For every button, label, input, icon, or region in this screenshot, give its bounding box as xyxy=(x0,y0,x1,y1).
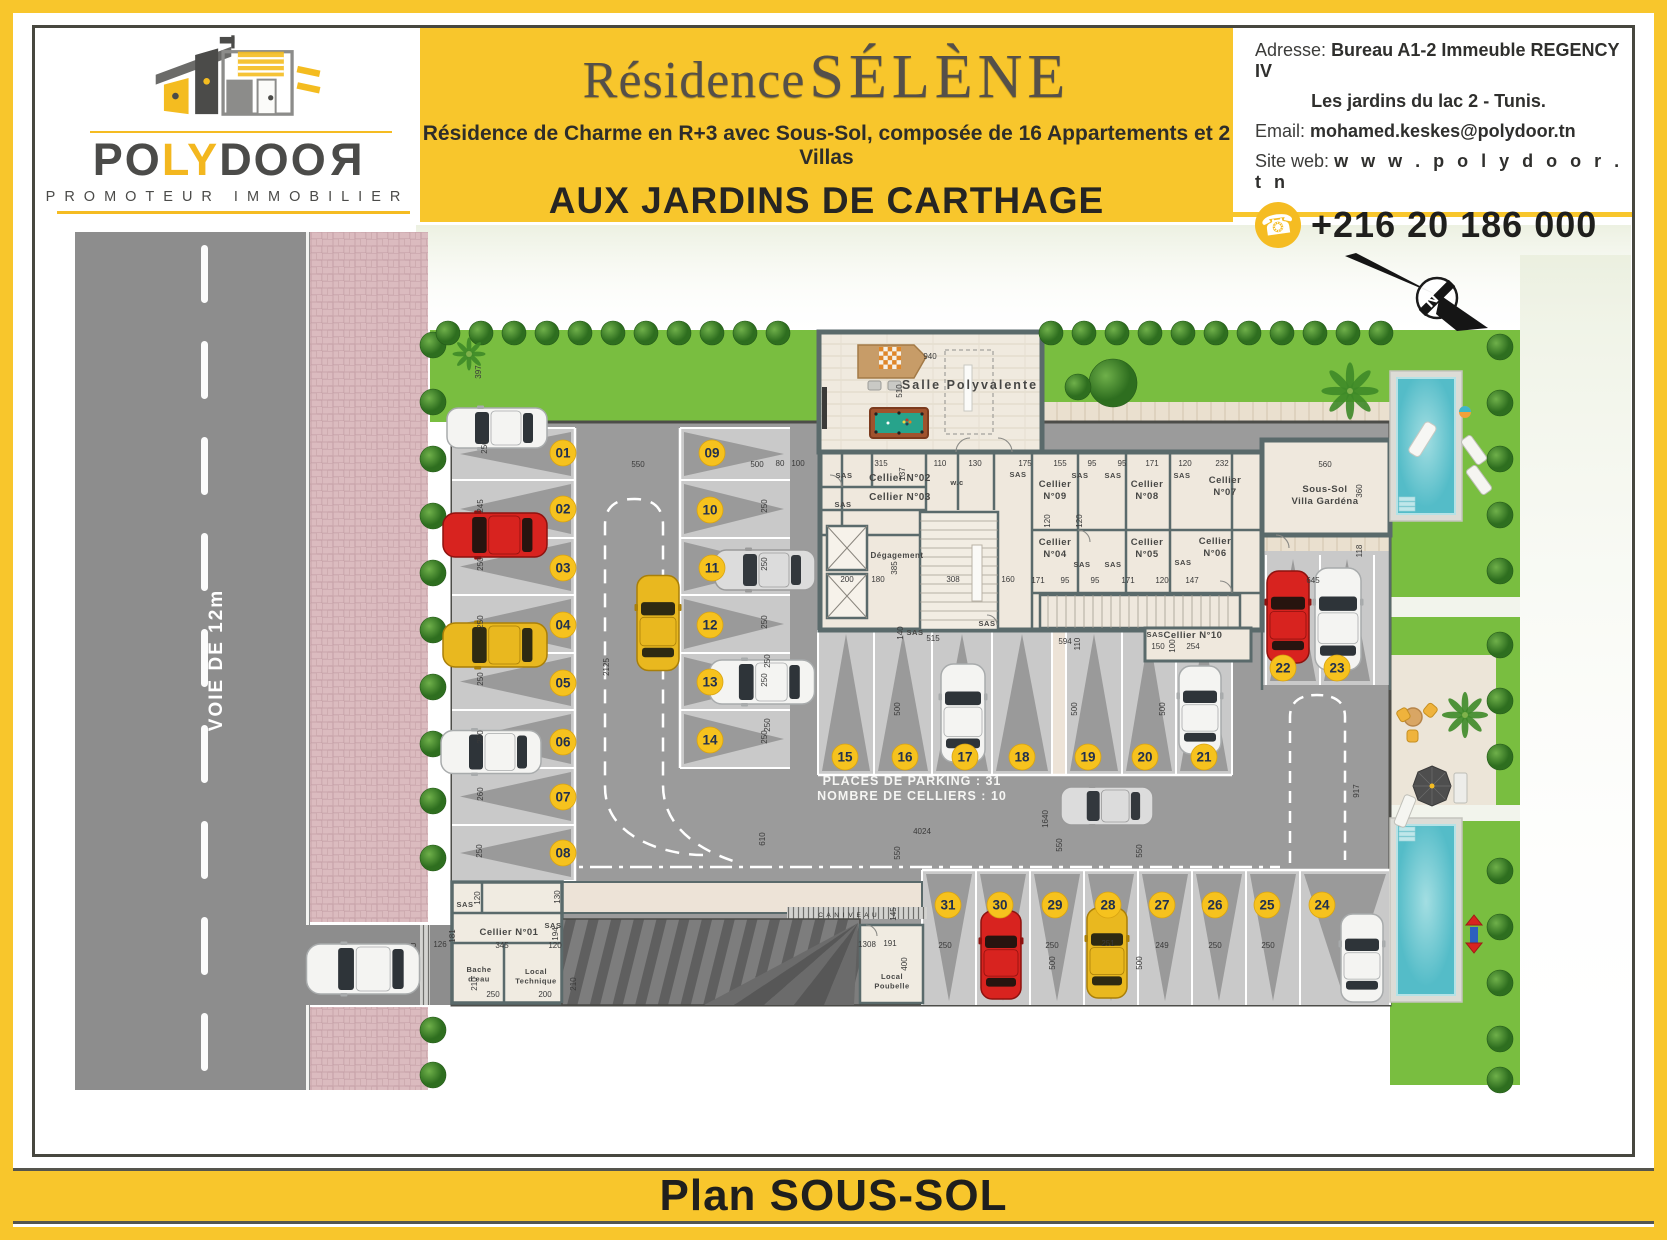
dimension-label: 200 xyxy=(840,575,854,584)
dimension-label: 250 xyxy=(760,673,769,687)
garden-path xyxy=(1390,597,1520,617)
sas-label: SAS xyxy=(1074,560,1091,569)
dimension-label: 150 xyxy=(1151,642,1165,651)
car-windshield xyxy=(945,691,981,705)
dimension-label: 250 xyxy=(760,557,769,571)
logo-block: POLYDOOR PROMOTEUR IMMOBILIER xyxy=(35,28,420,222)
car-roof xyxy=(1270,611,1306,639)
parking-spot-04: 04 xyxy=(550,612,576,638)
local-poubelle-room xyxy=(860,925,923,1003)
road-dash xyxy=(201,437,208,495)
dimension-label: 250 xyxy=(760,499,769,513)
car-yellow xyxy=(443,621,547,670)
dimension-label: 250 xyxy=(476,672,485,686)
parking-spot-18: 18 xyxy=(1009,744,1035,770)
local-technique-label: Technique xyxy=(515,976,556,985)
dimension-label: 250 xyxy=(476,615,485,629)
dimension-label: 181 xyxy=(448,929,457,943)
dimension-label: 560 xyxy=(1318,460,1332,469)
sas-label: SAS xyxy=(1175,558,1192,567)
dimension-label: 315 xyxy=(874,459,888,468)
bush-icon xyxy=(1487,744,1513,770)
cellier-01-label: Cellier N°01 xyxy=(480,927,539,938)
billiard-ball xyxy=(906,423,909,426)
dimension-label: 120 xyxy=(1155,576,1169,585)
car-mirror xyxy=(741,703,748,707)
contact-website: Site web: w w w . p o l y d o o r . t n xyxy=(1255,151,1632,193)
car-mirror xyxy=(474,666,481,670)
counter-tile xyxy=(892,347,896,351)
cellier-08-label: N°08 xyxy=(1135,491,1158,502)
car-rear-glass xyxy=(392,949,403,989)
car-roof xyxy=(356,947,390,991)
counter-tile xyxy=(888,360,892,364)
dimension-label: 250 xyxy=(938,941,952,950)
dimension-label: 180 xyxy=(871,575,885,584)
dimension-label: 250 xyxy=(1208,941,1222,950)
car-yellow xyxy=(635,576,682,671)
entrance-caniveau xyxy=(420,925,430,1005)
dimension-label: 645 xyxy=(1306,576,1320,585)
car-mirror xyxy=(1089,824,1096,828)
parking-spot-15: 15 xyxy=(832,744,858,770)
contact-email: Email: mohamed.keskes@polydoor.tn xyxy=(1255,121,1632,142)
parking-spot-05: 05 xyxy=(550,670,576,696)
car-roof xyxy=(485,734,515,771)
parking-spot-16: 16 xyxy=(892,744,918,770)
bush-icon xyxy=(535,321,559,345)
parking-spot-03: 03 xyxy=(550,555,576,581)
bush-icon xyxy=(700,321,724,345)
billiard-pocket xyxy=(920,412,923,415)
palm-tree-icon xyxy=(1321,362,1378,419)
pool-steps xyxy=(1399,832,1415,836)
car-mirror xyxy=(1220,692,1224,699)
car-rear-glass xyxy=(1092,976,1122,985)
bush-icon xyxy=(420,1062,446,1088)
dimension-label: 250 xyxy=(763,654,772,668)
sas-label: SAS xyxy=(1105,560,1122,569)
sas-label: SAS xyxy=(835,500,852,509)
dimension-label: 171 xyxy=(1031,576,1045,585)
parking-spot-31: 31 xyxy=(935,892,961,918)
dimension-label: 940 xyxy=(923,352,937,361)
bush-icon xyxy=(1487,914,1513,940)
dimension-label: 120 xyxy=(548,941,562,950)
counter-tile xyxy=(888,347,892,351)
dimension-label: 917 xyxy=(1352,784,1361,798)
stair-landing xyxy=(972,545,982,601)
spot-number: 09 xyxy=(704,446,719,461)
dimension-label: 550 xyxy=(893,846,902,860)
car-rear-glass xyxy=(791,555,801,585)
dimension-label: 249 xyxy=(1155,941,1169,950)
car-mirror xyxy=(1339,940,1343,947)
billiard-cloth xyxy=(875,413,923,433)
car-mirror xyxy=(1265,599,1269,606)
dimension-label: 100 xyxy=(1168,639,1177,653)
pool-steps xyxy=(1399,497,1415,501)
play-toy xyxy=(1470,927,1478,943)
car-mirror xyxy=(1126,935,1130,942)
car-mirror xyxy=(1089,785,1096,789)
sas-label: SAS xyxy=(1174,471,1191,480)
counter-tile xyxy=(879,347,883,351)
plan-title: Plan SOUS-SOL xyxy=(660,1171,1008,1221)
dimension-label: 145 xyxy=(889,907,898,921)
contact-phone-row: +216 20 186 000 xyxy=(1255,202,1632,248)
car-roof xyxy=(1182,705,1218,731)
car-mirror xyxy=(1020,937,1024,944)
spot-number: 30 xyxy=(992,898,1007,913)
bush-icon xyxy=(502,321,526,345)
sas-label: SAS xyxy=(457,900,474,909)
car-windshield xyxy=(1319,597,1357,611)
dimension-label: 155 xyxy=(1053,459,1067,468)
car-roof xyxy=(491,411,521,445)
contact-address-line2: Les jardins du lac 2 - Tunis. xyxy=(1255,91,1632,112)
bush-icon xyxy=(469,321,493,345)
dimension-label: 500 xyxy=(1158,702,1167,716)
spot-number: 16 xyxy=(897,750,913,765)
dimension-label: 250 xyxy=(475,844,484,858)
car-red xyxy=(443,511,547,560)
counter-tile xyxy=(883,356,887,360)
salle-polyvalente-room xyxy=(819,332,1042,452)
villa-gardena-label: Sous-Sol xyxy=(1302,484,1347,495)
dimension-label: 147 xyxy=(1185,576,1199,585)
counter-tile xyxy=(888,351,892,355)
dimension-label: 120 xyxy=(1075,514,1084,528)
bush-icon xyxy=(420,446,446,472)
spot-number: 31 xyxy=(940,898,956,913)
spot-number: 21 xyxy=(1196,750,1212,765)
sas-label: SAS xyxy=(1010,470,1027,479)
car-white xyxy=(447,406,547,451)
wc-label: w.c xyxy=(949,478,963,487)
bush-icon xyxy=(1487,858,1513,884)
residence-location: AUX JARDINS DE CARTHAGE xyxy=(420,180,1233,222)
car-windshield xyxy=(743,554,757,586)
bush-icon xyxy=(1039,321,1063,345)
parking-spot-23: 23 xyxy=(1324,655,1350,681)
poster-page: POLYDOOR PROMOTEUR IMMOBILIER Résidence … xyxy=(0,0,1667,1240)
spot-number: 25 xyxy=(1259,898,1275,913)
sun-lounger xyxy=(1454,773,1467,803)
dimension-label: 397 xyxy=(474,365,483,379)
car-mirror xyxy=(979,937,983,944)
car-windshield xyxy=(985,936,1017,948)
car-mirror xyxy=(635,604,639,611)
dimension-label: 308 xyxy=(946,575,960,584)
bush-icon xyxy=(1105,321,1129,345)
bush-icon xyxy=(1138,321,1162,345)
cellier-03-label: Cellier N°03 xyxy=(869,492,931,503)
garden-chair xyxy=(1407,730,1418,742)
caniveau-label: C A N I V E A U xyxy=(818,912,877,919)
car-rear-glass xyxy=(522,628,532,662)
umbrella-icon xyxy=(1413,766,1451,806)
counter-tile xyxy=(883,351,887,355)
spot-number: 28 xyxy=(1100,898,1116,913)
spot-number: 18 xyxy=(1014,750,1030,765)
pool-steps xyxy=(1399,827,1415,831)
counter-tile xyxy=(879,356,883,360)
sas-label: SAS xyxy=(979,619,996,628)
dimension-label: 254 xyxy=(1186,642,1200,651)
car-white xyxy=(441,728,541,776)
tv-unit xyxy=(822,387,827,429)
car-windshield xyxy=(1345,939,1379,951)
dimension-label: 400 xyxy=(900,957,909,971)
billiard-pocket xyxy=(897,431,900,434)
dimension-label: 250 xyxy=(480,440,489,454)
car-windshield xyxy=(1271,597,1305,610)
dimension-label: 250 xyxy=(476,557,485,571)
counter-tile xyxy=(892,365,896,369)
background-wash xyxy=(1520,255,1631,1095)
counter-tile xyxy=(897,360,901,364)
dimension-label: 95 xyxy=(1088,459,1097,468)
contact-block: Adresse: Bureau A1-2 Immeuble REGENCY IV… xyxy=(1233,28,1632,217)
car-mirror xyxy=(1085,935,1089,942)
car-silver xyxy=(1061,785,1153,828)
sidewalk xyxy=(310,1007,428,1090)
spot-number: 29 xyxy=(1047,898,1062,913)
road-dash xyxy=(201,821,208,879)
bush-icon xyxy=(420,845,446,871)
billiard-ball xyxy=(903,421,906,424)
car-roof xyxy=(1101,790,1129,822)
dimension-label: 500 xyxy=(750,460,764,469)
bush-icon xyxy=(420,617,446,643)
spot-number: 04 xyxy=(555,618,571,633)
dimension-label: 140 xyxy=(896,626,905,640)
dimension-label: 385 xyxy=(890,561,899,575)
counter-tile xyxy=(897,351,901,355)
billiard-pocket xyxy=(897,411,900,414)
brand-wordmark: POLYDOOR xyxy=(35,137,420,182)
spot-number: 03 xyxy=(555,561,571,576)
dimension-label: 120 xyxy=(1043,514,1052,528)
parking-spot-17: 17 xyxy=(952,744,978,770)
counter-tile xyxy=(879,360,883,364)
dimension-label: 171 xyxy=(1121,576,1135,585)
palm-center xyxy=(1462,712,1468,718)
counter-tile xyxy=(897,356,901,360)
road-dash xyxy=(201,1013,208,1071)
dimension-label: 500 xyxy=(1135,956,1144,970)
parking-spot-27: 27 xyxy=(1149,892,1175,918)
dimension-label: 126 xyxy=(433,940,447,949)
header: POLYDOOR PROMOTEUR IMMOBILIER Résidence … xyxy=(35,28,1632,222)
dimension-label: 171 xyxy=(1145,459,1159,468)
spot-number: 06 xyxy=(555,735,571,750)
palm-tree-icon xyxy=(1442,692,1488,738)
cellier-06-label: N°06 xyxy=(1203,548,1226,559)
sas-label: SAS xyxy=(836,471,853,480)
billiard-ball xyxy=(909,421,912,424)
car-roof xyxy=(984,950,1018,976)
bush-icon xyxy=(1204,321,1228,345)
degagement-label: Dégagement xyxy=(870,551,923,560)
counter-tile xyxy=(888,365,892,369)
parking-spot-14: 14 xyxy=(697,727,723,753)
cellier-06-label: Cellier xyxy=(1199,536,1232,547)
dimension-label: 500 xyxy=(1070,702,1079,716)
car-rear-glass xyxy=(986,978,1016,987)
pool-steps xyxy=(1399,837,1415,841)
pool-steps xyxy=(1399,502,1415,506)
dimension-label: 120 xyxy=(473,891,482,905)
car-rear-glass xyxy=(789,665,800,699)
swimming-pool xyxy=(1397,825,1455,995)
dimension-label: 194 xyxy=(551,927,560,941)
road-dash xyxy=(201,245,208,303)
bush-icon xyxy=(420,560,446,586)
car-mirror xyxy=(678,604,682,611)
car-white xyxy=(307,942,420,997)
dimension-label: 100 xyxy=(791,459,805,468)
dimension-label: 550 xyxy=(631,460,645,469)
dimension-label: 500 xyxy=(893,702,902,716)
counter-tile xyxy=(883,365,887,369)
parking-spot-30: 30 xyxy=(987,892,1013,918)
car-mirror xyxy=(1360,599,1364,606)
logo-divider-bottom xyxy=(57,211,410,214)
car-rear-glass xyxy=(523,413,533,443)
cellier-09-label: N°09 xyxy=(1043,491,1066,502)
dimension-label: 110 xyxy=(1073,637,1082,650)
parking-spot-22: 22 xyxy=(1270,655,1296,681)
footer-title-bar: Plan SOUS-SOL xyxy=(13,1168,1654,1224)
car-red xyxy=(1265,571,1312,663)
dimension-label: 1640 xyxy=(1041,810,1050,828)
parking-spot-26: 26 xyxy=(1202,892,1228,918)
car-red xyxy=(979,911,1024,999)
car-roof xyxy=(1090,948,1124,975)
bush-icon xyxy=(634,321,658,345)
car-mirror xyxy=(741,658,748,662)
spot-number: 23 xyxy=(1329,661,1345,676)
brand-tagline: PROMOTEUR IMMOBILIER xyxy=(35,189,420,205)
car-mirror xyxy=(471,773,478,777)
bush-icon xyxy=(1336,321,1360,345)
dimension-label: 95 xyxy=(1061,576,1070,585)
pool-steps xyxy=(1399,507,1415,511)
parking-spot-12: 12 xyxy=(697,612,723,638)
cellier-04-label: Cellier xyxy=(1039,537,1072,548)
logo-divider xyxy=(90,131,392,133)
dimension-label: 130 xyxy=(968,459,982,468)
bush-icon xyxy=(568,321,592,345)
billiard-pocket xyxy=(920,430,923,433)
chair xyxy=(868,381,881,390)
bush-icon xyxy=(1487,390,1513,416)
bush-icon xyxy=(1369,321,1393,345)
car-windshield xyxy=(338,948,354,990)
salle-polyvalente-label: Salle Polyvalente xyxy=(902,378,1038,392)
residence-title: Résidence SÉLÈNE xyxy=(420,42,1233,113)
bush-icon xyxy=(420,503,446,529)
car-rear-glass xyxy=(1131,792,1140,820)
car-mirror xyxy=(1382,940,1386,947)
car-mirror xyxy=(745,589,752,593)
car-roof xyxy=(1344,953,1380,979)
bush-icon xyxy=(1072,321,1096,345)
bush-icon xyxy=(1487,970,1513,996)
cellar-count-label: NOMBRE DE CELLIERS : 10 xyxy=(817,789,1007,803)
polydoor-house-icon xyxy=(128,32,328,124)
pillar-strip xyxy=(1052,630,1066,775)
dimension-label: 110 xyxy=(934,459,947,468)
parking-spot-19: 19 xyxy=(1075,744,1101,770)
counter-tile xyxy=(879,351,883,355)
parking-spot-25: 25 xyxy=(1254,892,1280,918)
dimension-label: 2125 xyxy=(602,658,611,676)
cellier-07-label: N°07 xyxy=(1213,487,1236,498)
car-white xyxy=(1339,914,1386,1002)
spot-number: 01 xyxy=(555,446,571,461)
bush-icon xyxy=(1487,334,1513,360)
dimension-label: 500 xyxy=(1048,956,1057,970)
spot-number: 26 xyxy=(1207,898,1223,913)
spot-number: 20 xyxy=(1137,750,1152,765)
car-mirror xyxy=(984,693,988,700)
bush-icon xyxy=(1487,502,1513,528)
counter-tile xyxy=(883,347,887,351)
villa-gardena-label: Villa Gardéna xyxy=(1291,496,1358,507)
parking-spot-11: 11 xyxy=(699,555,725,581)
contact-address: Adresse: Bureau A1-2 Immeuble REGENCY IV xyxy=(1255,40,1632,82)
cellier-08-label: Cellier xyxy=(1131,479,1164,490)
bush-icon xyxy=(1487,632,1513,658)
basement-floor-plan: VOIE DE 12mCANIVEAUC A N I V E A UN01020… xyxy=(36,225,1631,1100)
bush-icon xyxy=(1487,688,1513,714)
car-mirror xyxy=(1177,692,1181,699)
bush-icon xyxy=(601,321,625,345)
bush-icon xyxy=(1237,321,1261,345)
dimension-label: 610 xyxy=(758,832,767,846)
car-mirror xyxy=(939,693,943,700)
sas-label: SAS xyxy=(907,628,924,637)
spot-number: 19 xyxy=(1080,750,1095,765)
car-roof xyxy=(1318,613,1358,644)
dimension-label: 594 xyxy=(1058,637,1072,646)
dimension-label: 250 xyxy=(1261,941,1275,950)
car-roof xyxy=(944,707,982,736)
dimension-label: 345 xyxy=(495,941,509,950)
bush-icon xyxy=(420,674,446,700)
billiard-pocket xyxy=(874,412,877,415)
car-windshield xyxy=(1183,691,1217,703)
car-white xyxy=(1177,666,1224,754)
billiard-ball xyxy=(887,422,890,425)
dimension-label: 232 xyxy=(1215,459,1229,468)
cellier-05-label: N°05 xyxy=(1135,549,1158,560)
parking-spot-21: 21 xyxy=(1191,744,1217,770)
spot-number: 10 xyxy=(702,503,717,518)
title-banner: Résidence SÉLÈNE Résidence de Charme en … xyxy=(420,28,1233,222)
dimension-label: 160 xyxy=(1001,575,1015,584)
dimension-label: 251 xyxy=(1101,939,1115,948)
dimension-label: 130 xyxy=(553,890,562,904)
car-rear-glass xyxy=(642,648,674,658)
residence-subtitle: Résidence de Charme en R+3 avec Sous-Sol… xyxy=(420,122,1233,170)
dimension-label: 260 xyxy=(476,787,485,801)
road-dash xyxy=(201,341,208,399)
bush-icon xyxy=(1487,1026,1513,1052)
